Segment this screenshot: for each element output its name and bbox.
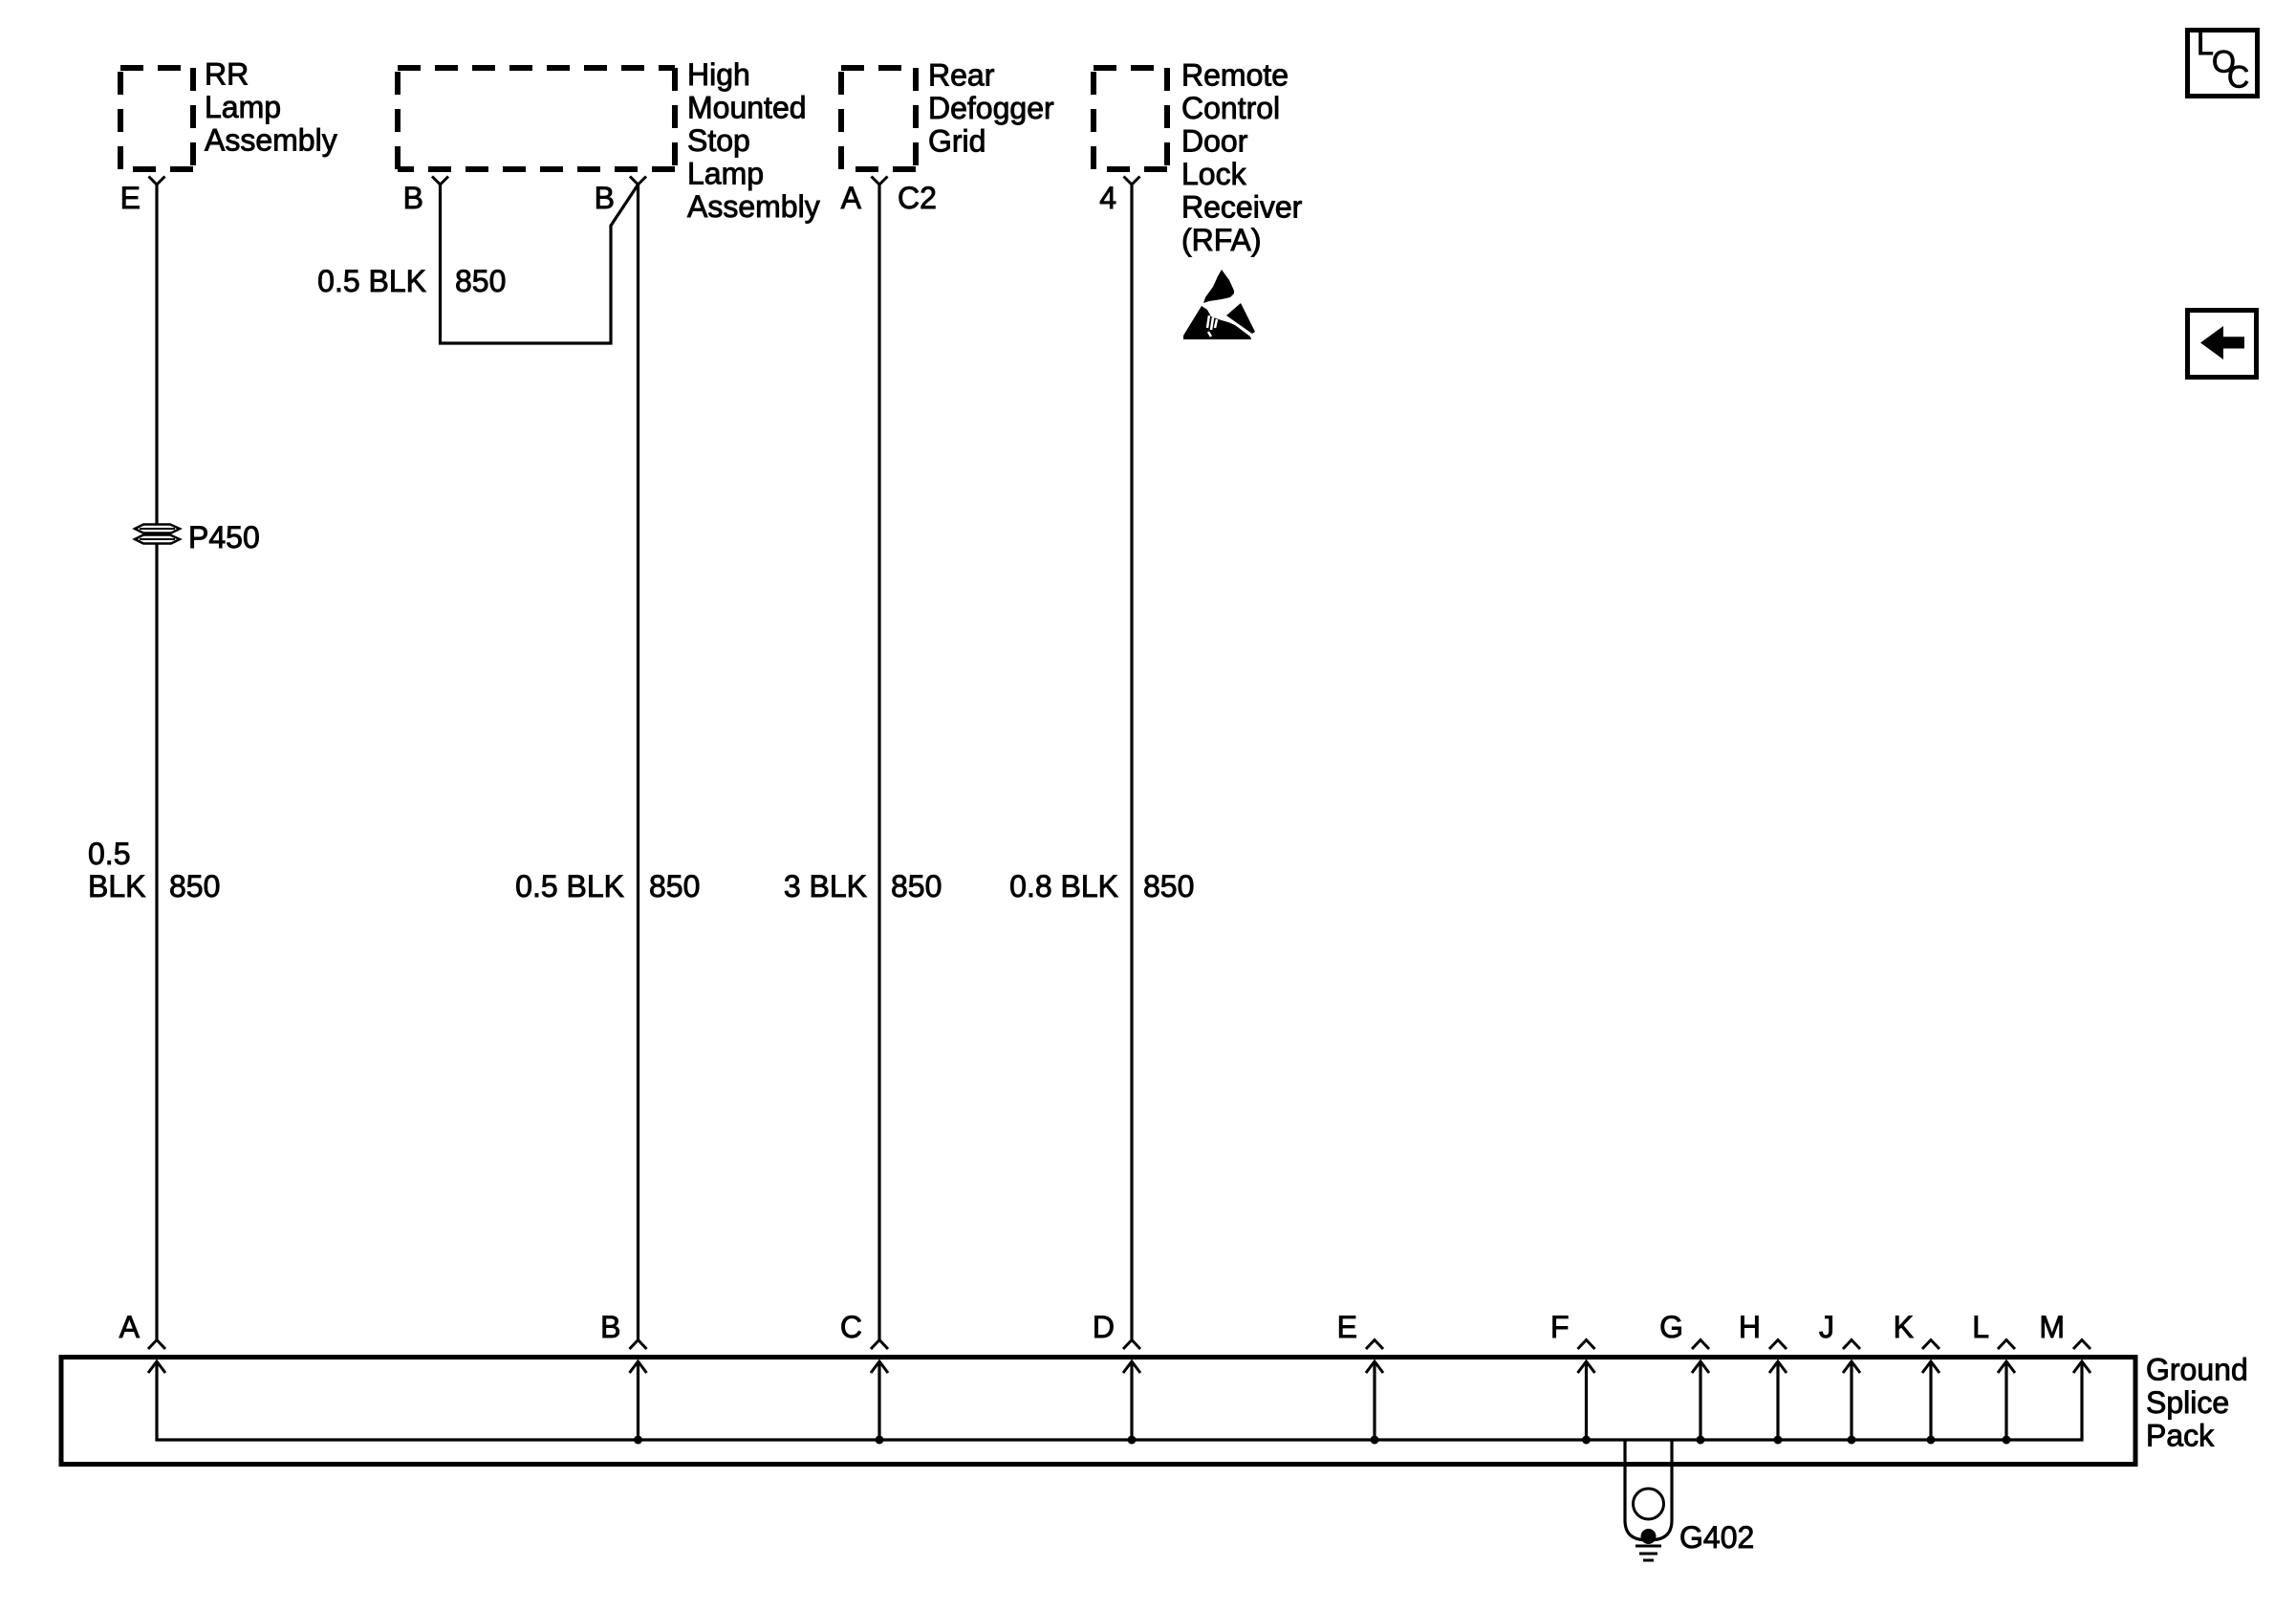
svg-text:B: B [595,181,615,215]
svg-text:850: 850 [169,869,220,903]
svg-text:Stop: Stop [687,123,750,158]
svg-text:Remote: Remote [1181,58,1289,93]
svg-text:High: High [687,57,750,92]
svg-text:A: A [119,1310,141,1344]
svg-text:B: B [600,1310,620,1344]
svg-text:Lamp: Lamp [687,157,764,191]
svg-text:Door: Door [1181,124,1248,159]
svg-text:Assembly: Assembly [687,189,820,224]
svg-text:C: C [840,1310,862,1344]
svg-text:Rear: Rear [928,58,995,93]
svg-text:J: J [1819,1310,1834,1344]
svg-text:Ground: Ground [2146,1353,2248,1387]
svg-text:A: A [841,181,862,215]
svg-text:(RFA): (RFA) [1181,223,1262,257]
svg-text:G402: G402 [1679,1520,1754,1555]
svg-text:C2: C2 [898,181,937,215]
svg-text:4: 4 [1099,181,1116,215]
svg-text:Control: Control [1181,91,1280,125]
svg-text:P450: P450 [188,520,260,555]
svg-text:3 BLK: 3 BLK [784,869,867,903]
svg-text:Defogger: Defogger [928,91,1054,125]
svg-text:Pack: Pack [2146,1419,2215,1453]
svg-text:Receiver: Receiver [1181,190,1303,225]
svg-text:Assembly: Assembly [205,123,337,158]
svg-text:D: D [1093,1310,1115,1344]
svg-text:0.5 BLK: 0.5 BLK [515,869,624,903]
svg-text:Splice: Splice [2146,1385,2229,1420]
svg-text:B: B [403,181,423,215]
svg-text:0.5: 0.5 [88,837,130,871]
svg-text:850: 850 [649,869,700,903]
svg-text:F: F [1550,1310,1570,1344]
svg-text:E: E [120,181,141,215]
svg-text:850: 850 [455,264,506,298]
svg-text:Mounted: Mounted [687,91,807,125]
svg-text:Lamp: Lamp [205,90,281,124]
svg-text:G: G [1659,1310,1683,1344]
svg-text:RR: RR [205,57,249,92]
svg-text:850: 850 [891,869,942,903]
svg-text:0.8 BLK: 0.8 BLK [1009,869,1118,903]
svg-text:H: H [1739,1310,1761,1344]
svg-text:E: E [1337,1310,1357,1344]
svg-text:L: L [1972,1310,1989,1344]
svg-text:K: K [1894,1310,1914,1344]
svg-text:Lock: Lock [1181,157,1247,191]
svg-text:850: 850 [1143,869,1194,903]
svg-text:M: M [2039,1310,2065,1344]
svg-text:BLK: BLK [88,869,145,903]
svg-text:Grid: Grid [928,124,986,159]
svg-text:0.5 BLK: 0.5 BLK [317,264,426,298]
svg-text:C: C [2227,60,2249,95]
